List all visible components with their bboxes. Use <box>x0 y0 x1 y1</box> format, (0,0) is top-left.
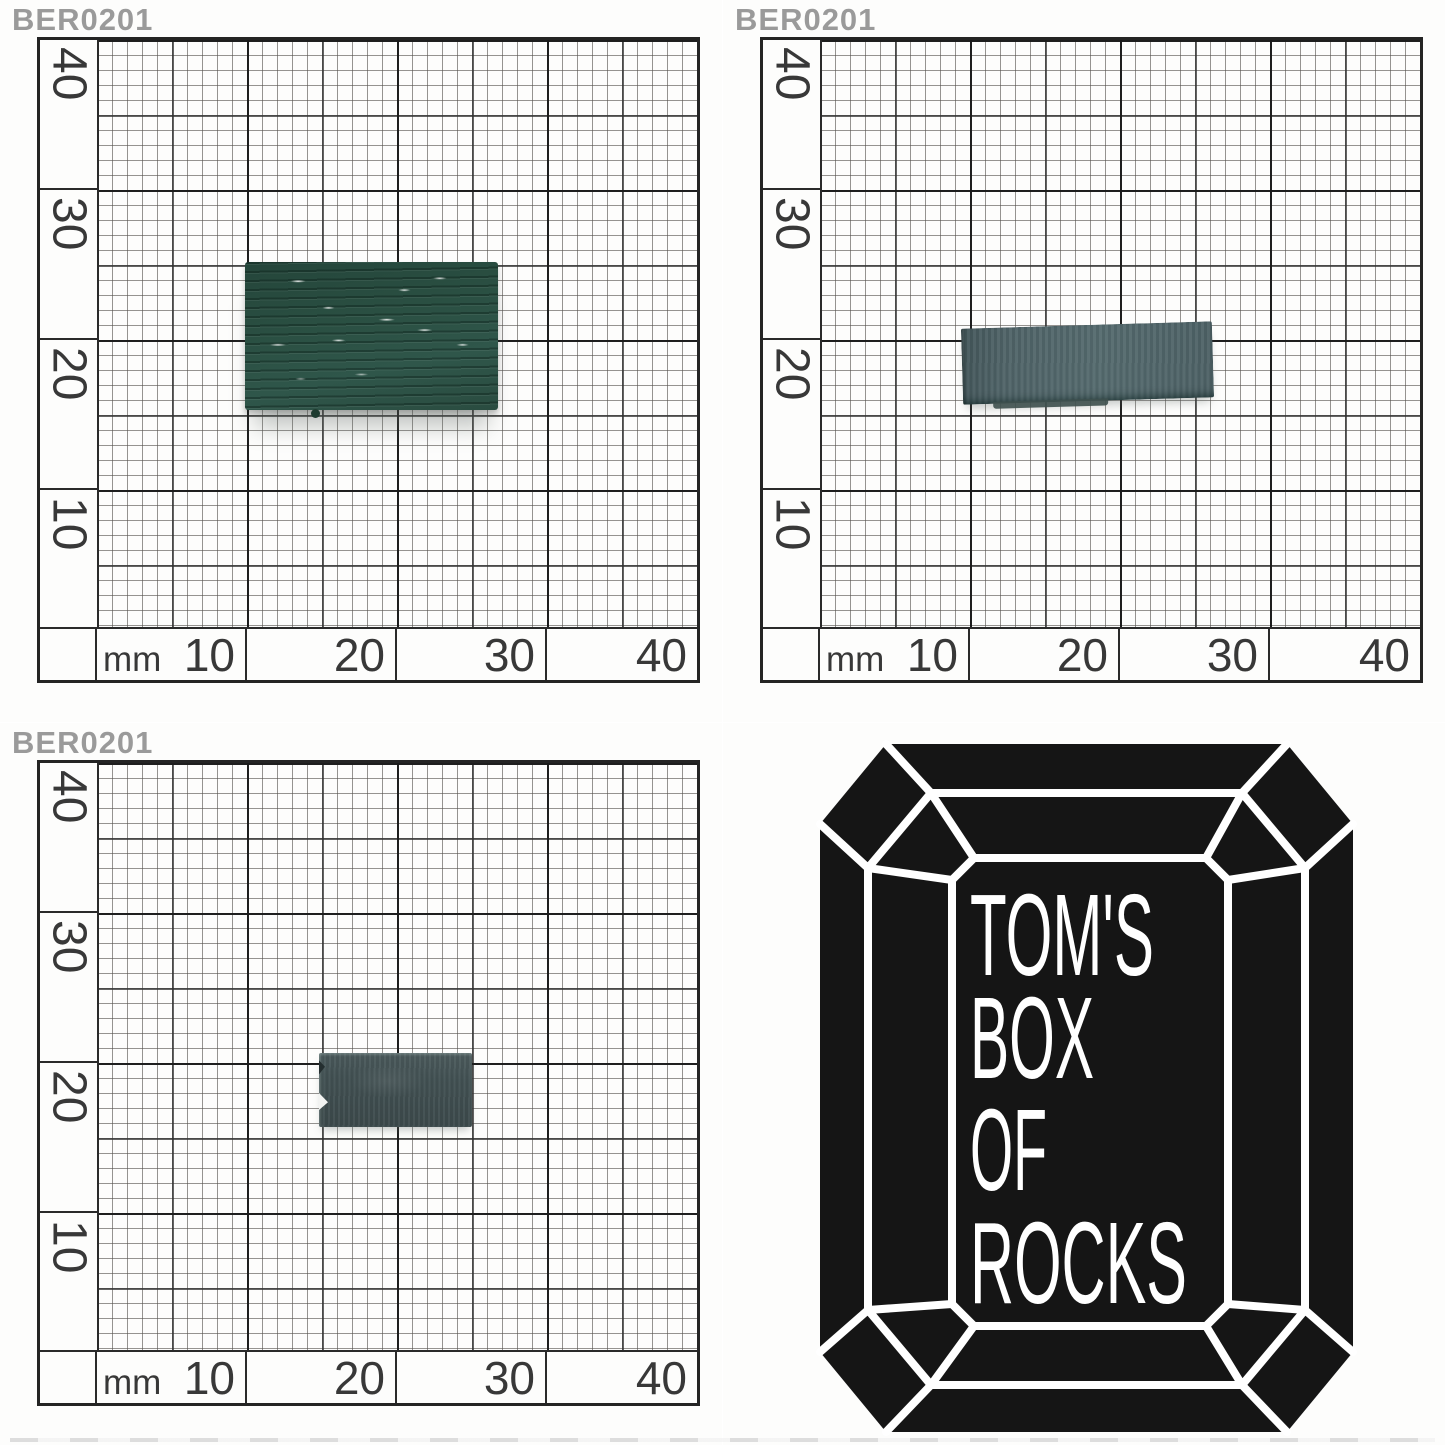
x-axis-cell: mm 10 <box>97 1352 247 1403</box>
y-axis-cell: 40 <box>763 40 820 190</box>
x-axis-ruler: mm 10 20 30 40 <box>40 627 697 680</box>
gem-logo: TOM'S BOX OF ROCKS <box>723 723 1445 1445</box>
specimen-green-slab-top-face <box>245 262 498 410</box>
specimen-id-label: BER0201 <box>12 4 153 35</box>
y-axis-cell: 20 <box>40 1063 97 1213</box>
x-tick-40: 40 <box>636 634 697 676</box>
specimen-id-label: BER0201 <box>735 4 876 35</box>
panel-specimen-end-face: BER0201 40 30 20 10 mm 10 20 30 40 <box>0 723 722 1445</box>
specimen-gray-slab-end-face <box>319 1053 472 1127</box>
y-axis-cell: 10 <box>40 1213 97 1350</box>
y-axis-ruler: 40 30 20 10 <box>40 40 99 627</box>
x-axis-cell: 30 <box>397 1352 547 1403</box>
y-axis-cell: 40 <box>40 763 97 913</box>
unit-label: mm <box>826 643 884 676</box>
x-axis-cell: 30 <box>1120 629 1270 680</box>
logo-line-of: OF <box>970 1085 1047 1215</box>
x-tick-10: 10 <box>907 634 968 676</box>
y-axis-ruler: 40 30 20 10 <box>763 40 822 627</box>
x-axis-ruler: mm 10 20 30 40 <box>763 627 1420 680</box>
x-tick-10: 10 <box>184 634 245 676</box>
y-tick-40: 40 <box>45 47 93 100</box>
x-axis-cell: 20 <box>247 1352 397 1403</box>
x-tick-30: 30 <box>484 1357 545 1399</box>
y-axis-cell: 20 <box>40 340 97 490</box>
y-tick-10: 10 <box>45 497 93 550</box>
x-tick-40: 40 <box>636 1357 697 1399</box>
specimen-gray-slab-side-face <box>961 321 1214 404</box>
photo-edge-artifact <box>10 1438 1435 1442</box>
x-axis-cell: 40 <box>547 629 697 680</box>
y-tick-20: 20 <box>45 1070 93 1123</box>
x-axis-cell: 40 <box>1270 629 1420 680</box>
unit-label: mm <box>103 1366 161 1399</box>
y-tick-10: 10 <box>768 497 816 550</box>
y-axis-cell: 30 <box>763 190 820 340</box>
ruler-corner-cell <box>40 1352 97 1403</box>
logo-line-box: BOX <box>970 973 1094 1103</box>
ruler-corner-cell <box>40 629 97 680</box>
x-tick-40: 40 <box>1359 634 1420 676</box>
panel-specimen-top-face: BER0201 40 30 20 10 mm 10 20 30 40 <box>0 0 722 722</box>
x-axis-cell: 40 <box>547 1352 697 1403</box>
y-axis-cell: 10 <box>40 490 97 627</box>
y-tick-30: 30 <box>45 920 93 973</box>
specimen-id-label: BER0201 <box>12 727 153 758</box>
x-axis-cell: 20 <box>970 629 1120 680</box>
y-axis-cell: 40 <box>40 40 97 190</box>
x-tick-20: 20 <box>1057 634 1118 676</box>
logo-line-rocks: ROCKS <box>970 1198 1187 1328</box>
panel-specimen-side-face: BER0201 40 30 20 10 mm 10 20 30 40 <box>723 0 1445 722</box>
unit-label: mm <box>103 643 161 676</box>
y-axis-ruler: 40 30 20 10 <box>40 763 99 1350</box>
y-axis-cell: 30 <box>40 190 97 340</box>
y-tick-10: 10 <box>45 1220 93 1273</box>
x-axis-cell: mm 10 <box>97 629 247 680</box>
x-tick-20: 20 <box>334 1357 395 1399</box>
y-tick-40: 40 <box>45 770 93 823</box>
x-axis-cell: 20 <box>247 629 397 680</box>
y-tick-40: 40 <box>768 47 816 100</box>
x-tick-20: 20 <box>334 634 395 676</box>
x-axis-ruler: mm 10 20 30 40 <box>40 1350 697 1403</box>
x-axis-cell: 30 <box>397 629 547 680</box>
x-tick-10: 10 <box>184 1357 245 1399</box>
x-axis-cell: mm 10 <box>820 629 970 680</box>
y-tick-30: 30 <box>45 197 93 250</box>
y-tick-30: 30 <box>768 197 816 250</box>
panel-logo: TOM'S BOX OF ROCKS <box>723 723 1445 1445</box>
x-tick-30: 30 <box>484 634 545 676</box>
y-tick-20: 20 <box>45 347 93 400</box>
y-tick-20: 20 <box>768 347 816 400</box>
y-axis-cell: 20 <box>763 340 820 490</box>
y-axis-cell: 10 <box>763 490 820 627</box>
x-tick-30: 30 <box>1207 634 1268 676</box>
ruler-corner-cell <box>763 629 820 680</box>
y-axis-cell: 30 <box>40 913 97 1063</box>
